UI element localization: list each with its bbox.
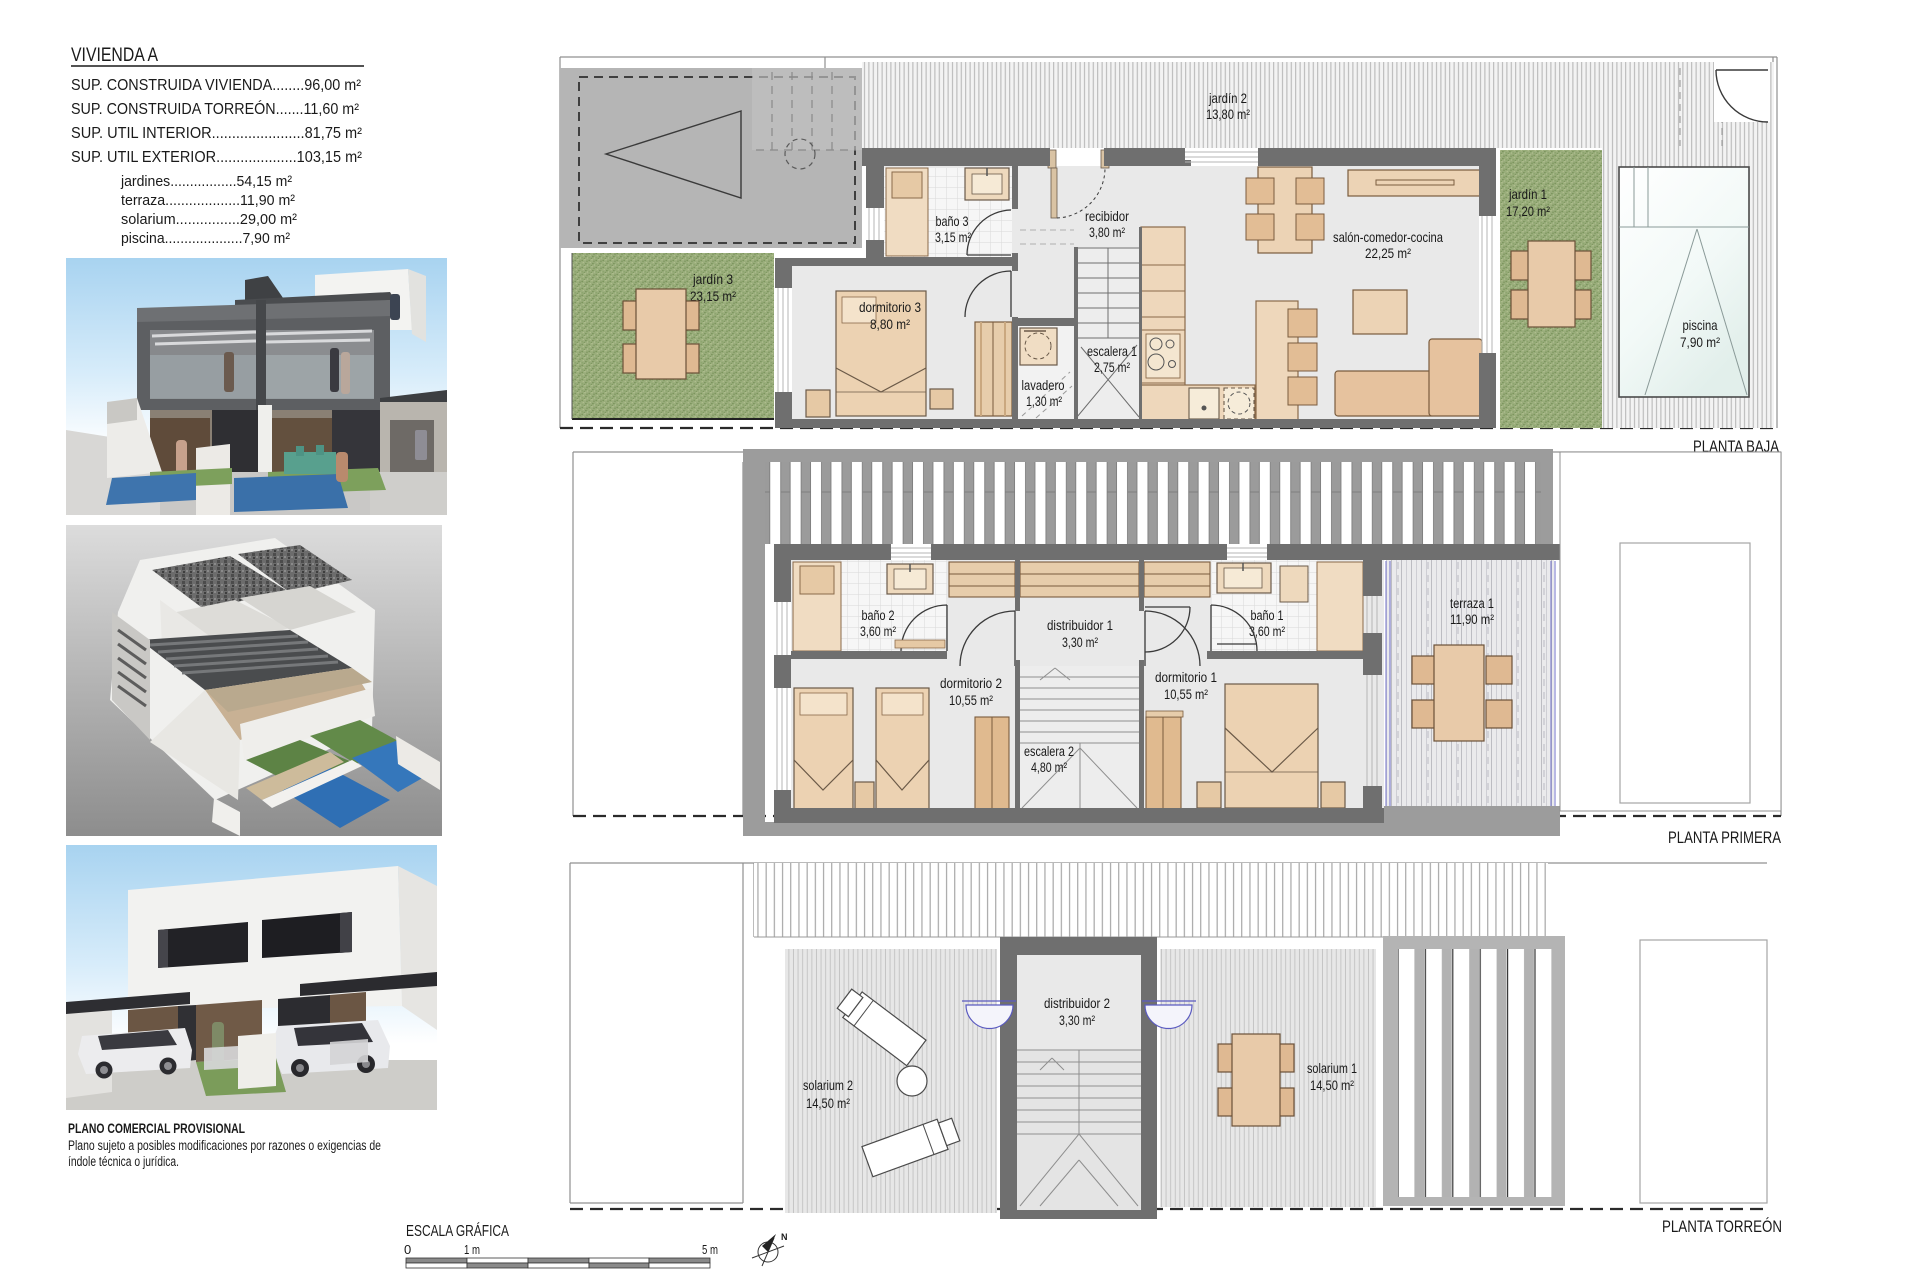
- svg-text:SUP. UTIL INTERIOR............: SUP. UTIL INTERIOR......................…: [71, 125, 362, 142]
- svg-text:solarium 1: solarium 1: [1307, 1061, 1357, 1076]
- svg-text:distribuidor 1: distribuidor 1: [1047, 618, 1113, 633]
- svg-text:N: N: [781, 1232, 788, 1242]
- svg-text:jardín 3: jardín 3: [692, 271, 733, 287]
- svg-text:dormitorio 3: dormitorio 3: [859, 299, 921, 315]
- svg-text:jardines.................54,15: jardines.................54,15 m²: [120, 173, 292, 190]
- svg-text:piscina....................7,9: piscina....................7,90 m²: [121, 230, 290, 247]
- svg-text:10,55 m²: 10,55 m²: [949, 693, 993, 708]
- svg-text:17,20 m²: 17,20 m²: [1506, 203, 1550, 219]
- svg-text:SUP. CONSTRUIDA TORREÓN.......: SUP. CONSTRUIDA TORREÓN.......11,60 m²: [71, 101, 359, 118]
- svg-text:VIVIENDA A: VIVIENDA A: [71, 45, 158, 66]
- svg-text:PLANO COMERCIAL PROVISIONAL: PLANO COMERCIAL PROVISIONAL: [68, 1121, 245, 1136]
- svg-text:7,90 m²: 7,90 m²: [1680, 334, 1720, 350]
- svg-text:jardín 1: jardín 1: [1508, 186, 1547, 202]
- svg-text:0: 0: [404, 1242, 411, 1257]
- svg-text:ESCALA GRÁFICA: ESCALA GRÁFICA: [406, 1223, 510, 1240]
- svg-text:8,80 m²: 8,80 m²: [870, 316, 910, 332]
- svg-text:terraza 1: terraza 1: [1450, 596, 1494, 611]
- svg-text:3,30 m²: 3,30 m²: [1062, 635, 1098, 650]
- svg-text:5 m: 5 m: [702, 1242, 718, 1257]
- svg-text:1,30 m²: 1,30 m²: [1026, 394, 1062, 409]
- svg-text:11,90 m²: 11,90 m²: [1450, 612, 1494, 627]
- svg-text:10,55 m²: 10,55 m²: [1164, 687, 1208, 702]
- svg-text:14,50 m²: 14,50 m²: [1310, 1078, 1354, 1093]
- svg-text:baño 1: baño 1: [1251, 608, 1284, 623]
- svg-text:baño 3: baño 3: [936, 213, 969, 229]
- svg-text:4,80 m²: 4,80 m²: [1031, 760, 1067, 775]
- svg-text:PLANTA PRIMERA: PLANTA PRIMERA: [1668, 828, 1782, 847]
- svg-text:3,30 m²: 3,30 m²: [1059, 1013, 1095, 1028]
- svg-text:PLANTA TORREÓN: PLANTA TORREÓN: [1662, 1217, 1782, 1236]
- svg-text:índole técnica o jurídica.: índole técnica o jurídica.: [68, 1154, 179, 1169]
- svg-text:SUP. UTIL EXTERIOR............: SUP. UTIL EXTERIOR....................10…: [71, 149, 362, 166]
- svg-text:dormitorio 1: dormitorio 1: [1155, 670, 1217, 685]
- svg-text:salón-comedor-cocina: salón-comedor-cocina: [1333, 229, 1443, 245]
- svg-text:solarium................29,00: solarium................29,00 m²: [121, 211, 297, 228]
- svg-text:escalera 2: escalera 2: [1024, 744, 1074, 759]
- svg-text:piscina: piscina: [1683, 317, 1718, 333]
- svg-text:distribuidor 2: distribuidor 2: [1044, 996, 1110, 1011]
- svg-text:2,75 m²: 2,75 m²: [1094, 359, 1130, 375]
- svg-text:3,60 m²: 3,60 m²: [860, 624, 896, 639]
- svg-text:3,80 m²: 3,80 m²: [1089, 224, 1125, 240]
- svg-text:baño 2: baño 2: [862, 608, 895, 623]
- svg-text:dormitorio 2: dormitorio 2: [940, 676, 1002, 691]
- svg-text:jardín 2: jardín 2: [1208, 90, 1247, 106]
- svg-text:Plano sujeto a posibles modifi: Plano sujeto a posibles modificaciones p…: [68, 1138, 381, 1153]
- svg-text:terraza...................11,9: terraza...................11,90 m²: [121, 192, 295, 209]
- svg-text:14,50 m²: 14,50 m²: [806, 1096, 850, 1111]
- svg-text:13,80 m²: 13,80 m²: [1206, 106, 1250, 122]
- svg-text:lavadero: lavadero: [1022, 378, 1065, 393]
- svg-text:escalera 1: escalera 1: [1087, 343, 1137, 359]
- svg-text:solarium 2: solarium 2: [803, 1078, 853, 1093]
- svg-text:SUP. CONSTRUIDA VIVIENDA......: SUP. CONSTRUIDA VIVIENDA........96,00 m²: [71, 77, 361, 94]
- svg-text:recibidor: recibidor: [1085, 208, 1129, 224]
- svg-text:1 m: 1 m: [464, 1242, 480, 1257]
- svg-text:3,15 m²: 3,15 m²: [935, 229, 971, 245]
- svg-text:22,25 m²: 22,25 m²: [1365, 245, 1411, 261]
